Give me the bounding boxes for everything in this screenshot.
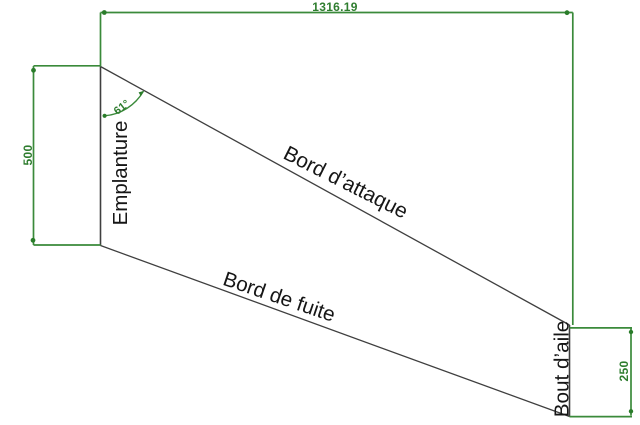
svg-text:1316.19: 1316.19 (312, 0, 358, 14)
svg-text:Bord d’attaque: Bord d’attaque (280, 142, 412, 224)
svg-text:Emplanture: Emplanture (109, 121, 132, 226)
svg-text:500: 500 (21, 145, 35, 166)
svg-text:Bord de fuite: Bord de fuite (220, 267, 338, 326)
svg-text:250: 250 (617, 361, 631, 382)
svg-text:Bout d’aile: Bout d’aile (550, 321, 573, 418)
